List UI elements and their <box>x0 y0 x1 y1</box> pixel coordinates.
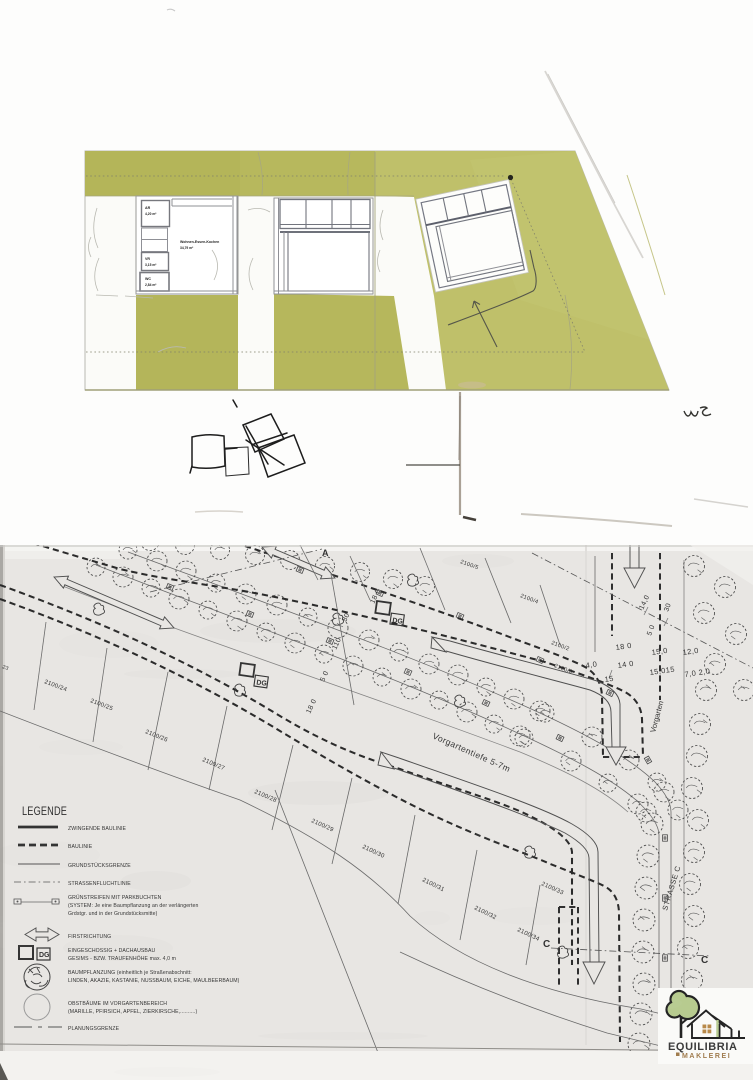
svg-text:3,15 m²: 3,15 m² <box>145 263 157 267</box>
svg-text:(SYSTEM: Je eine Baumpflanzung: (SYSTEM: Je eine Baumpflanzung an der ve… <box>68 903 198 909</box>
svg-text:4,20 m²: 4,20 m² <box>145 212 157 216</box>
svg-text:AR: AR <box>145 206 151 210</box>
svg-text:WC: WC <box>145 277 151 281</box>
svg-text:C: C <box>543 939 550 950</box>
svg-text:MAKLEREI: MAKLEREI <box>682 1053 731 1060</box>
svg-text:ZWINGENDE BAULINIE: ZWINGENDE BAULINIE <box>68 826 127 832</box>
svg-text:Wohnen-Essen-Kochen: Wohnen-Essen-Kochen <box>180 240 219 244</box>
svg-text:OBSTBÄUME IM VORGARTENBEREICH: OBSTBÄUME IM VORGARTENBEREICH <box>68 1000 167 1007</box>
svg-text:4,0: 4,0 <box>585 659 598 670</box>
svg-text:EQUILIBRIA: EQUILIBRIA <box>668 1041 738 1053</box>
svg-text:34,79 m²: 34,79 m² <box>180 246 194 250</box>
svg-text:Grdstgr. und in der Grundstück: Grdstgr. und in der Grundstücksmitte) <box>68 911 158 917</box>
svg-text:DG: DG <box>39 952 50 959</box>
svg-text:15: 15 <box>604 674 614 684</box>
svg-text:GRÜNSTREIFEN MIT PARKBUCHTEN: GRÜNSTREIFEN MIT PARKBUCHTEN <box>68 894 162 901</box>
svg-text:PLANUNGSGRENZE: PLANUNGSGRENZE <box>68 1026 120 1032</box>
svg-text:BAUMPFLANZUNG (einheitlich je: BAUMPFLANZUNG (einheitlich je Straßenabs… <box>68 970 192 976</box>
svg-text:LINDEN, AKAZIE, KASTANIE, NUSS: LINDEN, AKAZIE, KASTANIE, NUSSBAUM, EICH… <box>68 978 240 984</box>
svg-text:A: A <box>322 548 329 558</box>
svg-text:C: C <box>701 955 708 966</box>
svg-text:LEGENDE: LEGENDE <box>22 806 67 818</box>
svg-text:2,84 m²: 2,84 m² <box>145 283 157 287</box>
svg-text:VR: VR <box>145 257 150 261</box>
